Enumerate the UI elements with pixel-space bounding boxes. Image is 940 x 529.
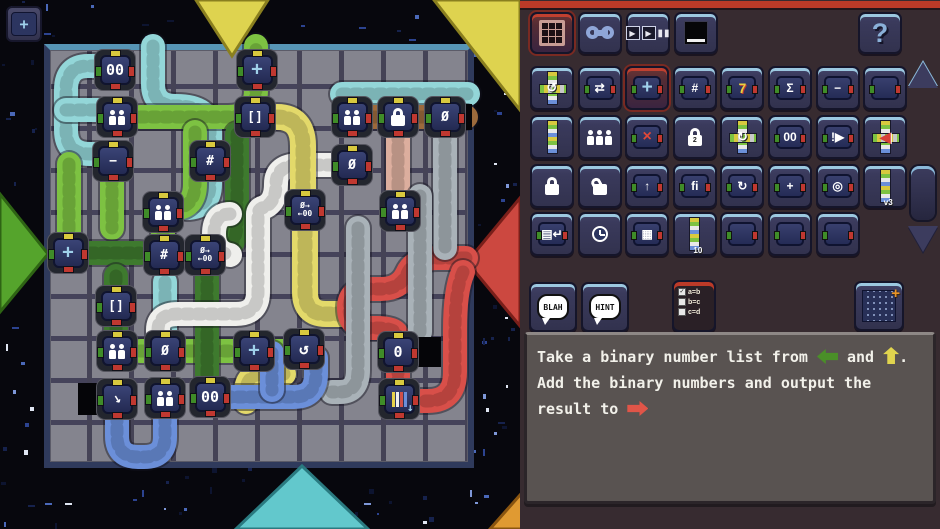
screen-enter-module-icon: ▤↵ — [538, 222, 566, 246]
star-dot — [21, 362, 25, 365]
star-dot — [359, 27, 366, 29]
grid3-icon — [539, 20, 565, 46]
objectives-checklist-button[interactable]: ✓a=bb=cc=d — [672, 280, 716, 332]
board-module-null[interactable]: Ø — [145, 331, 185, 371]
star-dot — [31, 60, 34, 65]
port-tick — [267, 347, 274, 358]
port-tick — [158, 225, 169, 232]
port-tick — [234, 347, 241, 358]
palette-push-up-module[interactable]: ↑ — [625, 164, 669, 208]
star-dot — [248, 468, 252, 471]
port-tick — [347, 97, 358, 104]
port-tick — [249, 364, 260, 371]
port-tick — [159, 268, 170, 275]
palette-plus-white-module[interactable]: + — [768, 164, 812, 208]
module-face: Ø — [430, 102, 461, 132]
push-up-module-icon: ↑ — [633, 174, 661, 198]
person-icon — [587, 130, 594, 145]
board-module-null[interactable]: Ø — [332, 145, 372, 185]
star-dot — [10, 112, 14, 116]
blah-button[interactable]: BLAH — [529, 282, 577, 332]
palette-delete-module[interactable]: × — [625, 115, 669, 159]
star-dot — [494, 163, 497, 165]
checklist-label: c=d — [688, 309, 700, 316]
star-dot — [355, 512, 357, 516]
port-tick — [223, 157, 230, 168]
module-icon: + — [11, 12, 37, 36]
palette-lock-2[interactable]: 2 — [673, 115, 717, 159]
star-dot — [35, 128, 37, 130]
palette-spiral-module[interactable]: ◎ — [816, 164, 860, 208]
blank-module-icon — [824, 222, 852, 246]
star-dot — [4, 522, 6, 526]
palette-read-bit-wire[interactable]: ◀ — [863, 115, 907, 159]
module-face: 00 — [195, 382, 226, 412]
port-tick — [393, 365, 404, 372]
palette-count-module[interactable]: # — [673, 66, 717, 110]
port-tick — [250, 130, 261, 137]
constant-seven-icon: 7 — [728, 76, 756, 100]
wrench-icon — [586, 26, 614, 40]
port-tick — [379, 395, 386, 406]
star-dot — [184, 508, 188, 511]
star-dot — [242, 479, 245, 482]
palette-wire-v3[interactable]: v3 — [863, 164, 907, 208]
star-dot — [40, 256, 43, 258]
star-dot — [493, 305, 497, 309]
star-dot — [494, 50, 499, 54]
port-tick — [395, 191, 406, 198]
star-dot — [301, 470, 304, 473]
module-face: Ø→←00 — [290, 195, 321, 225]
palette-blank-module[interactable] — [720, 212, 764, 256]
port-tick — [108, 141, 119, 148]
screen-module-icon: ▦ — [633, 222, 661, 246]
hint-button[interactable]: HINT — [581, 282, 629, 332]
star-dot — [475, 502, 478, 505]
person-icon — [157, 391, 164, 406]
star-dot — [505, 317, 508, 319]
palette-swap-values[interactable]: ⇄ — [578, 66, 622, 110]
board-module-zero[interactable]: 0 — [378, 332, 418, 372]
star-dot — [315, 510, 317, 514]
palette-constant-seven[interactable]: 7 — [720, 66, 764, 110]
module-face: ↓ — [102, 384, 133, 414]
palette-subtract-module[interactable]: − — [816, 66, 860, 110]
palette-wire-loop[interactable]: ↺ — [530, 66, 574, 110]
port-tick — [411, 348, 418, 359]
palette-double-zero[interactable]: 00 — [768, 115, 812, 159]
person-icon — [401, 204, 408, 219]
star-dot — [511, 328, 515, 330]
board-module-output-list[interactable]: ↓ — [379, 379, 419, 419]
port-tick — [112, 331, 123, 338]
port-tick — [112, 97, 123, 104]
module-face — [148, 197, 179, 227]
flag-bars-module-icon: fi — [681, 174, 709, 198]
playpause-icon: ▶▶▮▮ — [626, 26, 671, 40]
module-face — [337, 102, 368, 132]
double-zero-icon: 00 — [776, 125, 804, 149]
move-tool-button[interactable]: + — [6, 6, 42, 42]
port-tick — [96, 302, 103, 313]
palette-cycle-module[interactable]: ↻ — [720, 164, 764, 208]
port-tick — [178, 394, 185, 405]
port-tick — [97, 395, 104, 406]
module-face: # — [195, 146, 226, 176]
star-dot — [503, 36, 507, 41]
board-module-workers[interactable] — [380, 191, 420, 231]
panel-top-bar — [520, 1, 940, 10]
port-tick — [268, 113, 275, 124]
person-icon — [109, 110, 116, 125]
port-tick — [110, 50, 121, 57]
port-tick — [159, 235, 170, 242]
star-dot — [501, 199, 506, 202]
module-face: # — [149, 240, 180, 270]
person-icon — [118, 110, 125, 125]
star-dot — [512, 221, 515, 226]
scroll-up-button[interactable] — [908, 62, 938, 88]
module-face — [102, 336, 133, 366]
alert-module-icon: !▶ — [824, 125, 852, 149]
help-button[interactable]: ? — [858, 12, 902, 54]
port-tick — [97, 113, 104, 124]
star-dot — [2, 64, 5, 66]
port-tick — [160, 364, 171, 371]
board-module-null-to-00[interactable]: Ø→←00 — [285, 190, 325, 230]
palette-blank-module[interactable] — [816, 212, 860, 256]
star-dot — [219, 27, 221, 34]
port-tick — [395, 224, 406, 231]
star-dot — [11, 284, 14, 287]
wire-loop-2-icon: ↻ — [737, 120, 748, 154]
port-tick — [177, 251, 184, 262]
tools-button[interactable] — [578, 12, 622, 54]
star-dot — [91, 5, 94, 8]
port-tick — [378, 113, 385, 124]
port-tick — [128, 66, 135, 77]
star-dot — [271, 518, 275, 523]
port-tick — [394, 379, 405, 386]
plus-white-module-icon: + — [776, 174, 804, 198]
blackbox-icon — [684, 21, 708, 45]
port-tick — [393, 130, 404, 137]
star-dot — [44, 33, 51, 35]
unchecked-box-icon — [678, 298, 686, 306]
module-face: + — [53, 238, 84, 268]
star-dot — [494, 110, 497, 112]
port-tick — [126, 157, 133, 168]
board-module-subtract[interactable]: − — [93, 141, 133, 181]
palette-sum-module[interactable]: Σ — [768, 66, 812, 110]
star-dot — [6, 118, 11, 121]
port-tick — [160, 331, 171, 338]
subtract-module-icon: − — [824, 76, 852, 100]
port-tick — [458, 113, 465, 124]
star-dot — [377, 513, 379, 515]
checklist-label: b=c — [688, 299, 700, 306]
person-icon — [344, 110, 351, 125]
port-tick — [110, 83, 121, 90]
person-icon — [164, 205, 171, 220]
star-dot — [55, 523, 57, 529]
board-module-workers[interactable] — [97, 97, 137, 137]
port-tick — [111, 286, 122, 293]
person-icon — [392, 204, 399, 219]
star-dot — [46, 4, 48, 11]
board-module-add[interactable]: + — [234, 331, 274, 371]
port-tick — [440, 130, 451, 137]
board-module-workers[interactable] — [145, 378, 185, 418]
board-module-lock[interactable] — [378, 97, 418, 137]
module-face: + — [242, 55, 273, 85]
star-dot — [52, 35, 55, 37]
palette-bit-list-wire[interactable]: 10 — [673, 212, 717, 256]
star-dot — [513, 183, 517, 186]
palette-workers[interactable] — [578, 115, 622, 159]
star-dot — [369, 489, 373, 494]
palette-wire-straight[interactable] — [530, 115, 574, 159]
wire-v3-icon: v3 — [880, 169, 891, 203]
star-dot — [483, 39, 487, 43]
port-tick — [285, 206, 292, 217]
star-dot — [474, 53, 477, 57]
port-tick — [190, 393, 197, 404]
star-dot — [133, 499, 136, 501]
person-icon — [109, 344, 116, 359]
play-area: 00−#+[]ØØ+#Ø→←00Ø→←00[]Ø+↺0↓00↓ + — [0, 0, 520, 529]
board-module-counter-00[interactable]: 00 — [95, 50, 135, 90]
port-tick — [218, 251, 225, 262]
star-dot — [506, 184, 509, 188]
board-module-pointer[interactable]: ↓ — [97, 379, 137, 419]
star-dot — [492, 278, 496, 282]
board-module-count[interactable]: # — [190, 141, 230, 181]
port-tick — [145, 394, 152, 405]
speech-bubble-icon: HINT — [589, 294, 621, 320]
star-dot — [3, 447, 7, 451]
port-tick — [129, 302, 136, 313]
module-palette-button[interactable] — [530, 12, 574, 54]
palette-lock-open[interactable] — [578, 164, 622, 208]
person-icon — [155, 205, 162, 220]
star-dot — [210, 487, 212, 494]
port-tick — [130, 395, 137, 406]
port-tick — [237, 66, 244, 77]
port-tick — [413, 207, 420, 218]
star-dot — [511, 229, 516, 232]
instruction-text: Take a binary number list from and .Add … — [524, 332, 936, 504]
scrollbar-thumb[interactable] — [911, 166, 935, 220]
module-face — [383, 102, 414, 132]
star-dot — [185, 476, 190, 478]
star-dot — [504, 93, 511, 95]
star-dot — [301, 25, 306, 27]
port-tick — [250, 97, 261, 104]
star-dot — [415, 15, 419, 18]
checklist-label: a=b — [688, 289, 700, 296]
port-tick — [93, 157, 100, 168]
palette-screen-enter-module[interactable]: ▤↵ — [530, 212, 574, 256]
star-dot — [470, 490, 472, 497]
count-module-icon: # — [681, 76, 709, 100]
star-dot — [389, 501, 392, 504]
swap-values-icon: ⇄ — [586, 76, 614, 100]
board-module-null[interactable]: Ø — [425, 97, 465, 137]
star-dot — [145, 36, 149, 41]
star-dot — [25, 423, 28, 427]
port-tick — [393, 97, 404, 104]
port-tick — [130, 113, 137, 124]
star-dot — [179, 512, 182, 515]
star-dot — [22, 1, 26, 3]
module-face: [] — [240, 102, 271, 132]
port-tick — [160, 378, 171, 385]
cycle-module-icon: ↻ — [728, 174, 756, 198]
port-tick — [249, 331, 260, 338]
arrow-up-icon — [883, 347, 899, 364]
module-face: [] — [101, 291, 132, 321]
port-tick — [318, 206, 325, 217]
add-module-icon: + — [633, 76, 661, 100]
board-module-workers[interactable] — [97, 331, 137, 371]
port-tick — [108, 174, 119, 181]
palette-clock-module[interactable] — [578, 212, 622, 256]
star-dot — [212, 468, 217, 473]
palette-blank-module[interactable] — [768, 212, 812, 256]
star-dot — [409, 39, 416, 41]
star-dot — [502, 426, 506, 429]
blank-module-icon — [728, 222, 756, 246]
star-dot — [506, 385, 509, 389]
port-tick — [270, 66, 277, 77]
port-tick — [112, 130, 123, 137]
speech-bubble-icon: BLAH — [537, 294, 569, 320]
port-tick — [95, 66, 102, 77]
star-dot — [494, 432, 498, 435]
star-dot — [478, 224, 481, 226]
port-tick — [347, 130, 358, 137]
port-tick — [300, 223, 311, 230]
port-tick — [48, 249, 55, 260]
scroll-down-button[interactable] — [908, 226, 938, 252]
port-tick — [144, 251, 151, 262]
star-dot — [166, 481, 169, 484]
palette-screen-module[interactable]: ▦ — [625, 212, 669, 256]
star-dot — [397, 30, 401, 32]
star-dot — [65, 503, 72, 505]
star-dot — [13, 390, 16, 394]
checklist-item: c=d — [678, 308, 710, 316]
palette-wire-loop-2[interactable]: ↻ — [720, 115, 764, 159]
palette-alert-module[interactable]: !▶ — [816, 115, 860, 159]
port-tick — [440, 97, 451, 104]
star-dot — [6, 344, 8, 351]
module-face: ↺ — [289, 334, 320, 364]
star-dot — [484, 495, 489, 497]
star-dot — [491, 337, 494, 341]
board-module-null-to-00[interactable]: Ø→←00 — [185, 235, 225, 275]
module-face — [150, 383, 181, 413]
module-face — [102, 102, 133, 132]
wire-loop-icon: ↺ — [547, 71, 558, 105]
palette-blank-module[interactable] — [863, 66, 907, 110]
star-dot — [30, 407, 34, 411]
new-board-button[interactable]: + — [854, 281, 904, 331]
board-module-list[interactable]: [] — [235, 97, 275, 137]
port-tick — [97, 347, 104, 358]
read-bit-wire-icon: ◀ — [880, 120, 891, 154]
port-tick — [205, 410, 216, 417]
board-module-loop[interactable]: ↺ — [284, 329, 324, 369]
list-output-icon: ↓ — [392, 391, 407, 407]
arrow-right-icon — [627, 401, 648, 416]
palette-flag-bars-module[interactable]: fi — [673, 164, 717, 208]
board-module-workers[interactable] — [143, 192, 183, 232]
star-dot — [483, 449, 485, 456]
port-tick — [200, 235, 211, 242]
person-icon — [605, 130, 612, 145]
port-tick — [158, 192, 169, 199]
palette-add-module[interactable]: + — [625, 66, 669, 110]
port-tick — [284, 345, 291, 356]
run-controls-button[interactable]: ▶▶▮▮ — [626, 12, 670, 54]
port-tick — [176, 208, 183, 219]
blank-module-icon — [871, 76, 899, 100]
port-tick — [347, 145, 358, 152]
lock-2-icon: 2 — [688, 135, 702, 146]
board-module-count[interactable]: # — [144, 235, 184, 275]
port-tick — [393, 332, 404, 339]
board-module-list[interactable]: [] — [96, 286, 136, 326]
port-tick — [425, 113, 432, 124]
star-dot — [423, 496, 427, 500]
board-module-workers[interactable] — [332, 97, 372, 137]
port-tick — [185, 251, 192, 262]
star-dot — [498, 422, 505, 424]
lock-open-icon — [593, 184, 607, 195]
clock-module-icon — [592, 226, 608, 242]
port-tick — [63, 266, 74, 273]
person-icon — [596, 130, 603, 145]
star-dot — [508, 337, 510, 341]
module-face: Ø→←00 — [190, 240, 221, 270]
board-module-counter-00[interactable]: 00 — [190, 377, 230, 417]
board-module-input-module[interactable]: + — [48, 233, 88, 273]
port-tick — [178, 347, 185, 358]
board-module-add[interactable]: + — [237, 50, 277, 90]
module-face: Ø — [337, 150, 368, 180]
star-dot — [28, 505, 35, 507]
checklist-item: b=c — [678, 298, 710, 306]
port-tick — [411, 113, 418, 124]
person-icon — [118, 344, 125, 359]
port-tick — [300, 190, 311, 197]
port-tick — [143, 208, 150, 219]
star-dot — [14, 182, 17, 186]
arrow-left-icon — [817, 349, 838, 364]
checked-box-icon: ✓ — [678, 288, 686, 296]
port-tick — [347, 178, 358, 185]
screen-view-button[interactable] — [674, 12, 718, 54]
palette-lock-closed[interactable] — [530, 164, 574, 208]
spiral-module-icon: ◎ — [824, 174, 852, 198]
star-dot — [1, 482, 6, 485]
person-icon — [166, 391, 173, 406]
game-screen: 00−#+[]ØØ+#Ø→←00Ø→←00[]Ø+↺0↓00↓ + ▶▶▮▮ ?… — [0, 0, 940, 529]
port-tick — [365, 161, 372, 172]
